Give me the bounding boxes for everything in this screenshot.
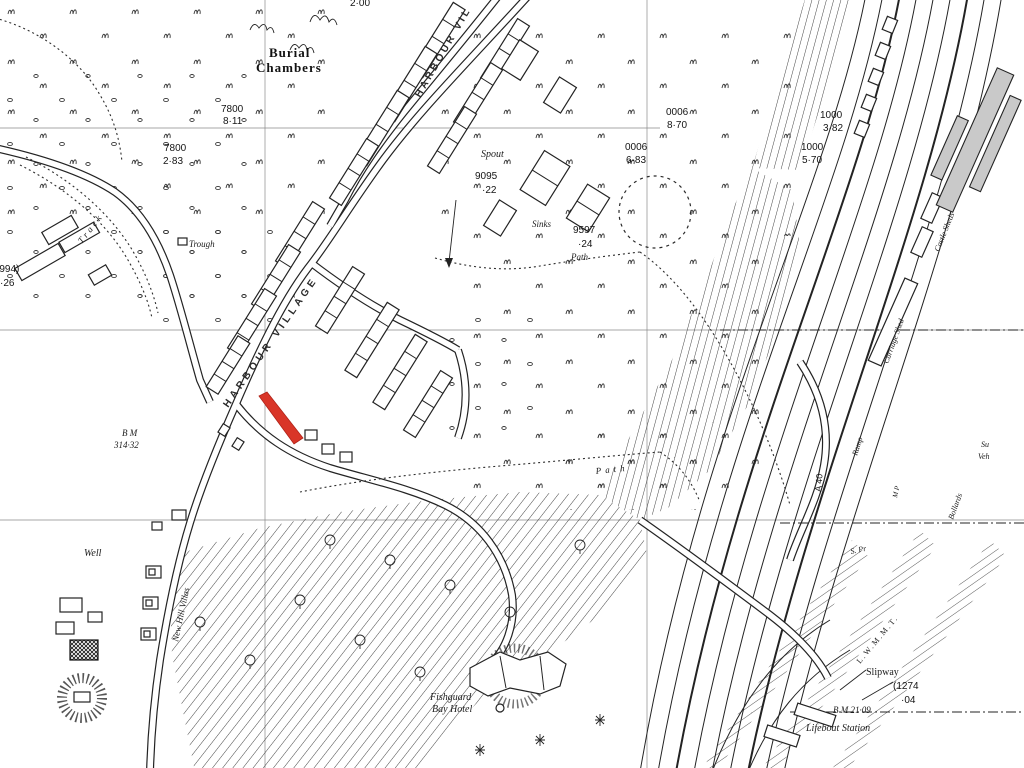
label-chambers: Chambers <box>256 60 322 75</box>
parcel-0006a-area: 8·70 <box>667 120 687 131</box>
label-veh: Veh <box>978 452 990 461</box>
label-burial: Burial <box>269 45 310 60</box>
label-a40: A 40 <box>813 473 825 492</box>
label-slipway: Slipway <box>866 667 899 678</box>
label-benchmark-1: B M <box>122 428 138 438</box>
parcel-9095: 9095 <box>475 171 498 182</box>
dark-roofed-building <box>70 640 98 660</box>
parcel-994: (994) <box>0 264 19 275</box>
parcel-0006b-area: 6·83 <box>626 155 646 166</box>
label-well: Well <box>84 548 102 559</box>
parcel-994-area: ·26 <box>0 278 15 289</box>
parcel-1000a-area: 3·82 <box>823 123 843 134</box>
label-benchmark-1-value: 314·32 <box>113 440 139 450</box>
parcel-0006b: 0006 <box>625 142 648 153</box>
parcel-0006a: 0006 <box>666 107 689 118</box>
parcel-9095-area: ·22 <box>482 185 497 196</box>
parcel-7800b: 7800 <box>164 143 187 154</box>
label-path-1: Path <box>570 252 588 262</box>
parcel-7800a-area: 8·11 <box>223 116 243 127</box>
parcel-7800b-area: 2·83 <box>163 156 183 167</box>
label-sinks: Sinks <box>532 219 551 229</box>
label-su: Su <box>981 440 989 449</box>
label-hotel-1: Fishguard <box>429 692 472 703</box>
parcel-7800a: 7800 <box>221 104 244 115</box>
parcel-9597-area: ·24 <box>578 239 593 250</box>
label-spout: Spout <box>481 149 504 160</box>
label-lifeboat-station: Lifeboat Station <box>805 723 870 734</box>
label-benchmark-2: B M 21·09 <box>833 705 871 715</box>
parcel-200: 2·00 <box>350 0 370 9</box>
parcel-1274: (1274 <box>893 681 919 692</box>
parcel-1000b-area: 5·70 <box>802 155 822 166</box>
parcel-9597: 9597 <box>573 225 596 236</box>
label-hotel-2: Bay Hotel <box>432 704 472 715</box>
map-viewport: Burial Chambers 7800 8·11 7800 2·83 0006… <box>0 0 1024 768</box>
parcel-1000a: 1000 <box>820 110 843 121</box>
label-trough: Trough <box>189 239 215 249</box>
parcel-1274-area: ·04 <box>901 695 916 706</box>
map-canvas[interactable]: Burial Chambers 7800 8·11 7800 2·83 0006… <box>0 0 1024 768</box>
parcel-1000b: 1000 <box>801 142 824 153</box>
